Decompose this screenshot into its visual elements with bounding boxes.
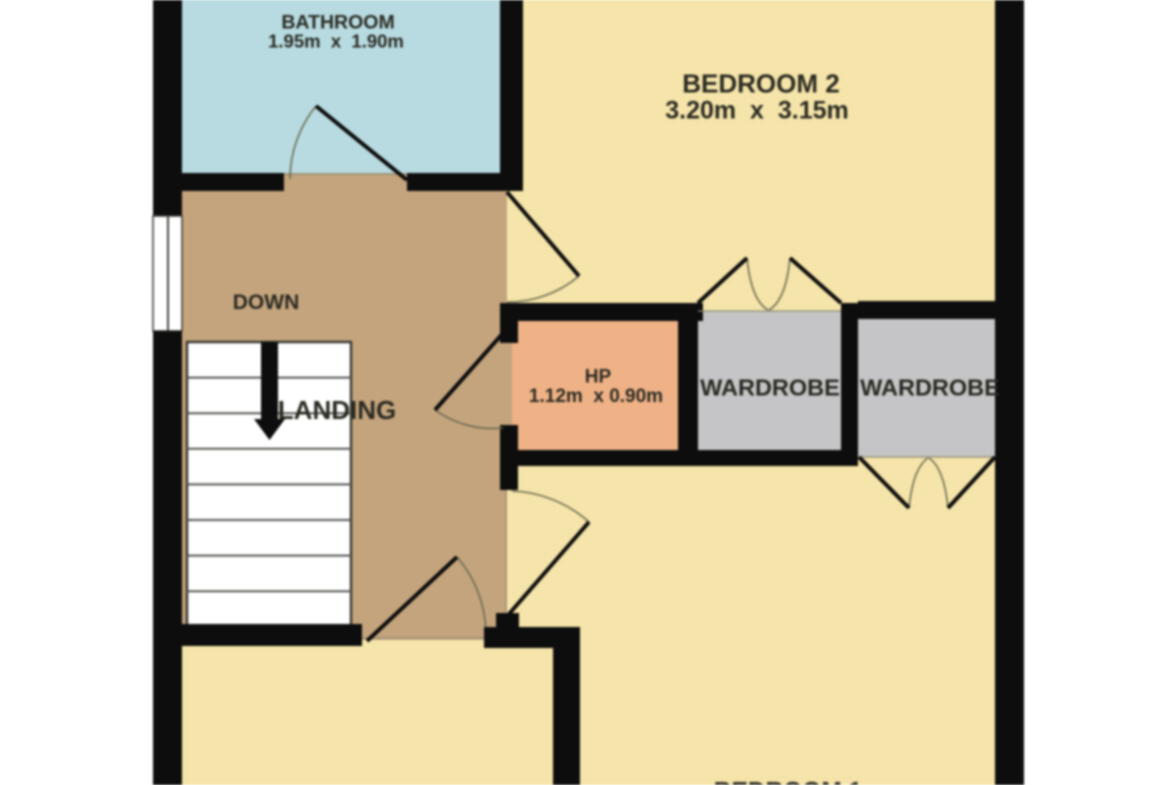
svg-text:1.95m x 1.90m: 1.95m x 1.90m [268, 31, 404, 52]
svg-text:3.20m x 3.15m: 3.20m x 3.15m [665, 97, 848, 125]
svg-text:DOWN: DOWN [233, 291, 300, 314]
svg-text:HP: HP [585, 367, 612, 388]
svg-text:LANDING: LANDING [278, 395, 396, 425]
svg-text:BEDROOM 2: BEDROOM 2 [682, 69, 839, 99]
svg-text:1.12m x 0.90m: 1.12m x 0.90m [529, 386, 663, 407]
svg-text:WARDROBE: WARDROBE [700, 375, 840, 401]
svg-text:WARDROBE: WARDROBE [860, 375, 1000, 401]
svg-text:BEDROOM 1: BEDROOM 1 [714, 778, 862, 785]
